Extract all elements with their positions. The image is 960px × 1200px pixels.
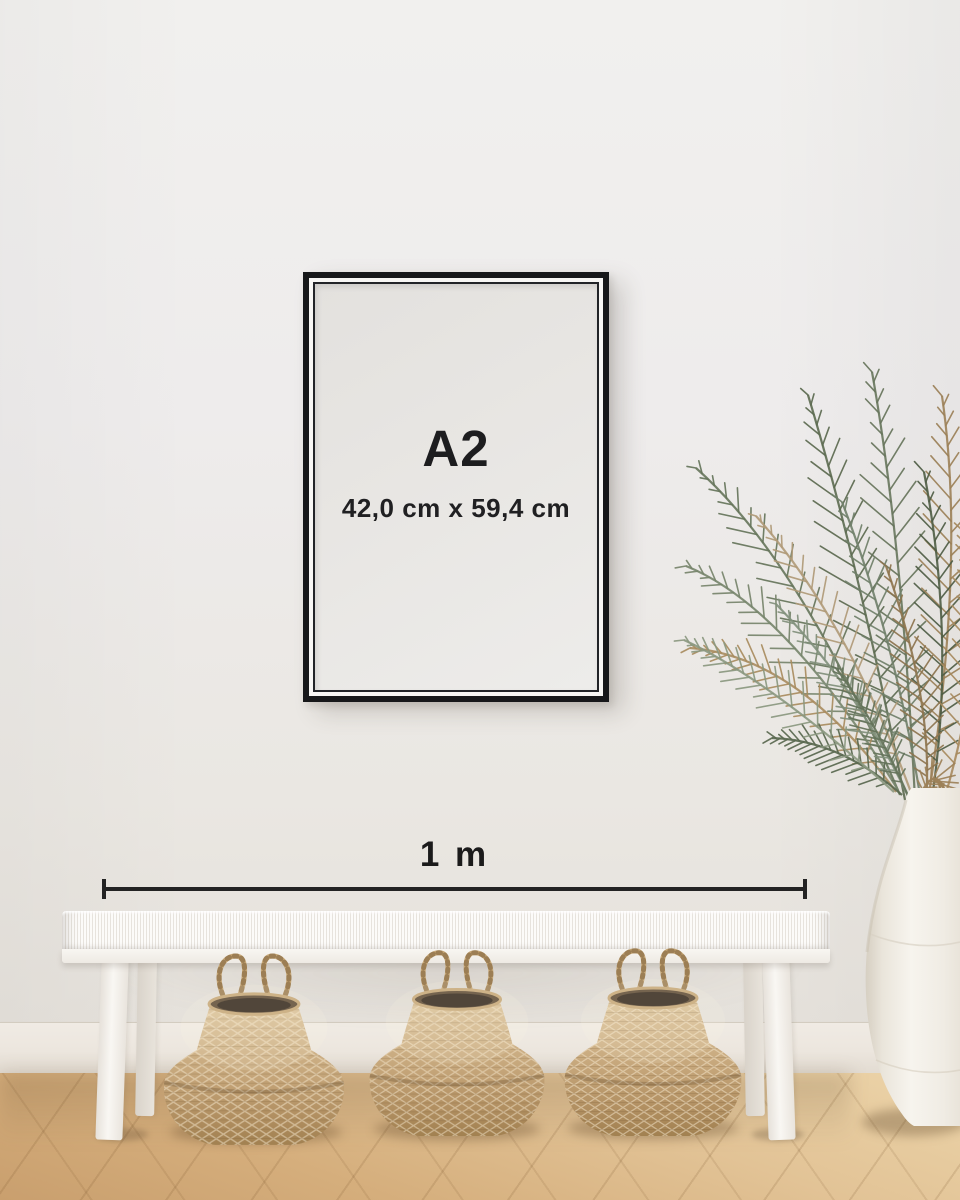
basket-3 bbox=[565, 951, 742, 1136]
scale-bar-line bbox=[102, 887, 807, 891]
basket-1 bbox=[164, 956, 344, 1145]
scale-bar-label: 1 m bbox=[102, 835, 807, 875]
poster-dimensions-label: 42,0 cm x 59,4 cm bbox=[342, 493, 570, 524]
frame-fillet: A2 42,0 cm x 59,4 cm bbox=[309, 278, 603, 696]
poster: A2 42,0 cm x 59,4 cm bbox=[313, 282, 599, 692]
poster-frame: A2 42,0 cm x 59,4 cm bbox=[303, 272, 609, 702]
poster-size-label: A2 bbox=[422, 423, 489, 474]
basket-2 bbox=[370, 953, 545, 1136]
storage-baskets bbox=[0, 920, 960, 1200]
